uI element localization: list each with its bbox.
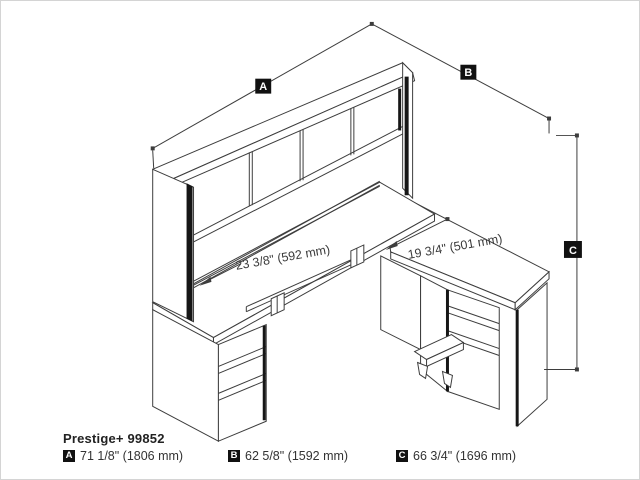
label-c: C: [569, 245, 577, 257]
legend-value-c: 66 3/4" (1696 mm): [413, 449, 516, 463]
legend-badge-c: C: [396, 450, 408, 462]
label-b: B: [464, 67, 472, 79]
legend-badge-a: A: [63, 450, 75, 462]
legend-entry-b: B 62 5/8" (1592 mm): [228, 449, 348, 463]
legend-entry-a: A 71 1/8" (1806 mm): [63, 449, 183, 463]
furniture-line-drawing: A B C 23 3/8" (592 mm) 19 3/4" (501 mm): [1, 1, 639, 479]
legend-entry-c: C 66 3/4" (1696 mm): [396, 449, 516, 463]
legend-value-b: 62 5/8" (1592 mm): [245, 449, 348, 463]
hutch-top: [153, 63, 413, 184]
return-back-panel: [381, 256, 421, 350]
label-a: A: [259, 81, 267, 93]
product-title: Prestige+ 99852: [63, 431, 165, 446]
product-spec-sheet: A B C 23 3/8" (592 mm) 19 3/4" (501 mm) …: [0, 0, 640, 480]
legend-badge-b: B: [228, 450, 240, 462]
legend-value-a: 71 1/8" (1806 mm): [80, 449, 183, 463]
